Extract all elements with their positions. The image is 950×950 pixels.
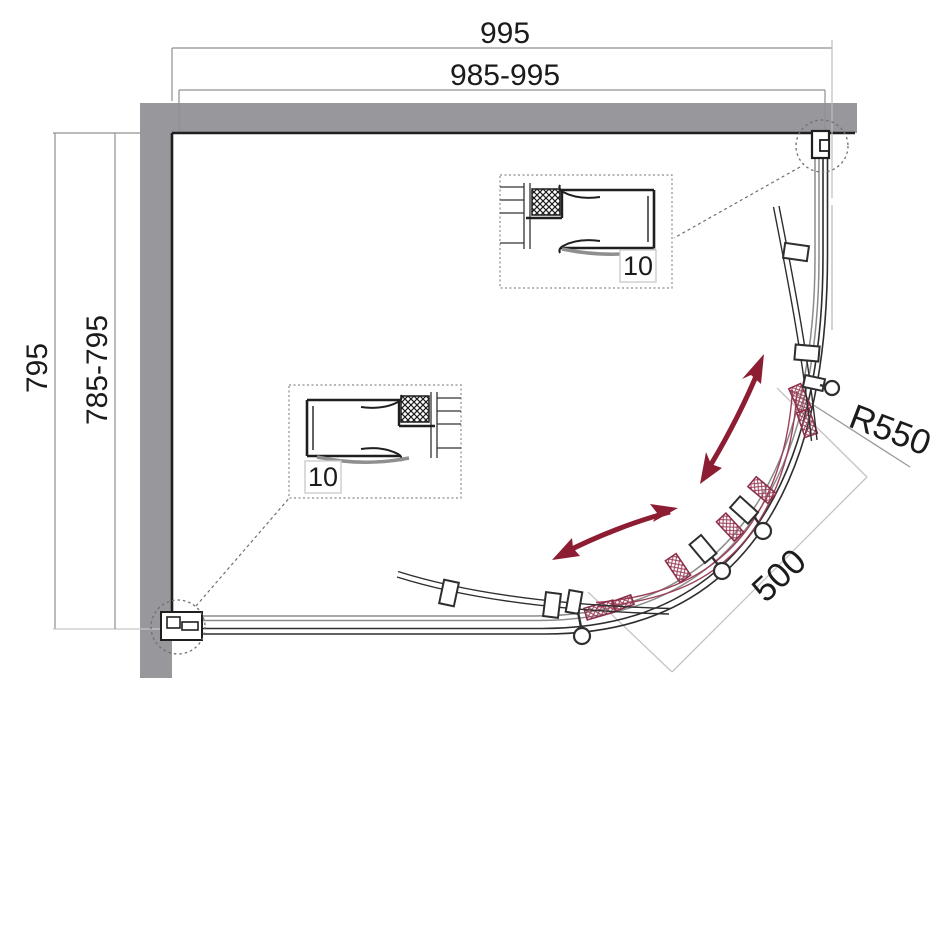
technical-drawing-page: 995 985-995 795 785-795 500 R550 <box>0 0 950 950</box>
slide-arrow-top <box>700 354 764 484</box>
door-clamp <box>612 595 634 611</box>
roller-knob <box>755 523 771 539</box>
wall-profile-top-right <box>812 131 829 158</box>
door-bracket <box>543 592 561 618</box>
dim-label-785-795: 785-795 <box>81 315 114 425</box>
door-clamp <box>748 477 776 504</box>
door-handle-bracket <box>566 590 583 614</box>
detail-callout-bottom: 10 <box>289 385 461 498</box>
detail-label-bottom: 10 <box>308 462 338 492</box>
dim-label-795: 795 <box>21 343 54 393</box>
door-handle-knob <box>574 628 590 644</box>
shower-enclosure-drawing: 995 985-995 795 785-795 500 R550 <box>0 0 950 950</box>
detail-leader-top <box>674 167 800 238</box>
seal-hatch <box>532 189 560 215</box>
arrowhead-down <box>700 452 722 484</box>
left-wall <box>140 103 172 678</box>
wall-profile-bottom-left <box>161 612 202 640</box>
door-clamp <box>665 554 690 583</box>
top-wall <box>140 103 857 133</box>
dimension-depth-adjust: 785-795 <box>81 133 115 629</box>
detail-leader-bottom <box>196 496 291 606</box>
door-bracket <box>783 243 809 261</box>
inner-rail-1 <box>172 154 815 616</box>
detail-label-top: 10 <box>623 251 653 281</box>
dim-label-985-995: 985-995 <box>450 59 560 92</box>
outer-rail-1 <box>172 154 823 629</box>
detail-callout-top: 10 <box>500 175 672 288</box>
roller-knob <box>714 563 730 579</box>
dim-label-500: 500 <box>745 541 814 609</box>
door-handle-knob <box>825 381 839 395</box>
door-bracket <box>794 344 819 361</box>
dim-label-995: 995 <box>480 17 530 50</box>
seal-hatch <box>401 396 429 422</box>
slide-arrow-bottom <box>552 504 678 560</box>
inner-rail-2 <box>172 154 819 621</box>
arrowhead-right <box>650 504 678 522</box>
